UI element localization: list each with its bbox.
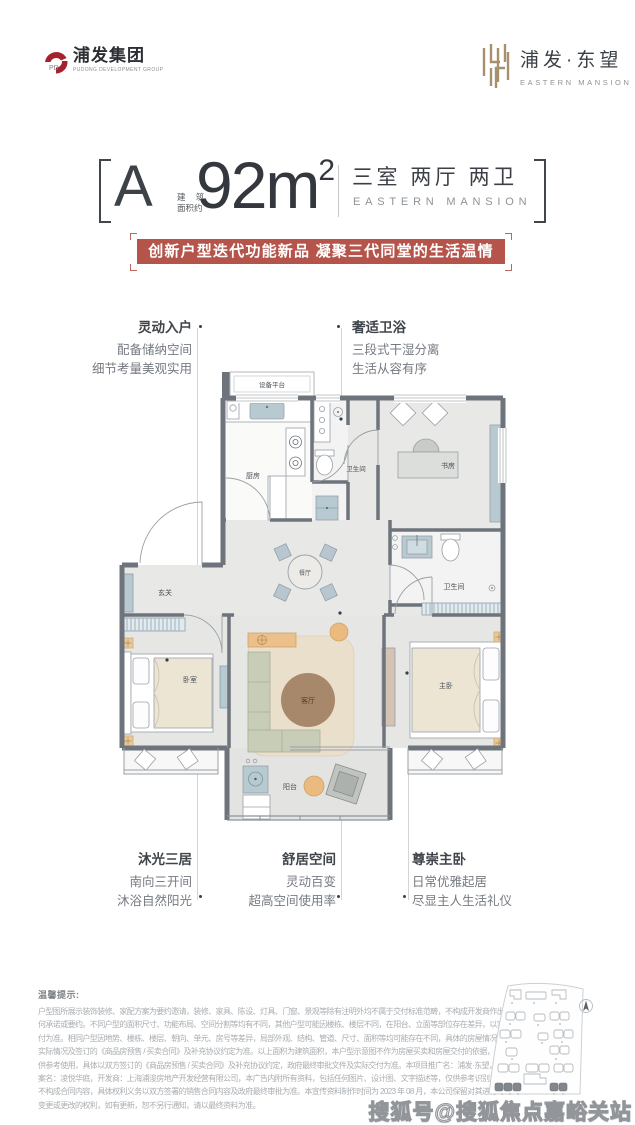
room-label-kitchen: 厨房 <box>246 471 260 480</box>
banner-corner-mark <box>130 233 137 240</box>
callout-title: 奢适卫浴 <box>352 316 512 336</box>
room-label-bedroom: 卧室 <box>183 675 197 684</box>
callout-dot <box>337 325 340 328</box>
callout-dot <box>199 325 202 328</box>
banner-corner-mark <box>130 264 137 271</box>
eastern-mansion-tagline: EASTERN MANSION <box>520 78 632 87</box>
banner-corner-mark <box>505 264 512 271</box>
pudong-group-name: 浦发集团 <box>73 46 163 65</box>
room-label-equipment: 设备平台 <box>259 380 285 389</box>
unit-area: 92m2 <box>196 147 335 223</box>
eastern-mansion-emblem-icon <box>481 42 511 90</box>
disclaimer-line: 供参考使用，具体以双方签订的《商品房预售 / 买卖合同》及补充协议约定，政府最终… <box>38 1059 486 1072</box>
living-furniture: 客厅 <box>248 623 354 756</box>
title-divider <box>338 165 339 217</box>
callout-line: 南向三开间 <box>28 873 192 892</box>
eastern-mansion-name: 浦发·东望 <box>520 50 632 72</box>
disclaimer-line: 实际情况及签订的《商品房预售 / 买卖合同》及补充协议约定为准。以上面积为建筑面… <box>38 1045 486 1058</box>
disclaimer-line: 付为准。相同户型因地势、楼栋、楼层、朝向、单元、房号等差异，局部外观、结构、管道… <box>38 1032 486 1045</box>
callout-title: 灵动入户 <box>28 316 192 336</box>
disclaimer-line: 何承诺或要约。不同户型的面积尺寸、功能布局、空间分割等均有不同，其他户型可能因楼… <box>38 1018 486 1031</box>
banner-corner-mark <box>505 233 512 240</box>
disclaimer-line: 户型图所展示装饰装修、家配方案为要约邀请，装修、家具、陈设、灯具、门窗、景观等除… <box>38 1005 486 1018</box>
callout-line: 配备储纳空间 <box>28 341 192 360</box>
site-map <box>486 980 601 1102</box>
svg-text:PD: PD <box>49 65 59 72</box>
pudong-group-tagline: PUDONG DEVELOPMENT GROUP <box>73 67 163 73</box>
room-label-bath1: 卫生间 <box>346 464 366 473</box>
callout-line: 灵动百变 <box>172 873 336 892</box>
unit-type-letter: A <box>114 153 153 220</box>
room-label-balcony: 阳台 <box>283 782 297 791</box>
pudong-group-logo: PD 浦发集团 PUDONG DEVELOPMENT GROUP <box>42 46 163 76</box>
room-label-bath2: 卫生间 <box>444 582 465 591</box>
room-label-living: 客厅 <box>301 696 315 705</box>
callout-title: 沐光三居 <box>28 848 192 868</box>
room-label-study: 书房 <box>441 461 455 470</box>
room-configuration: 三室 两厅 两卫 <box>352 161 518 191</box>
room-configuration-en: EASTERN MANSION <box>353 196 531 208</box>
disclaimer-title: 温馨提示: <box>38 988 486 1001</box>
callout-space: 舒居空间 灵动百变 超高空间使用率 <box>172 848 336 911</box>
callout-line: 尽显主人生活礼仪 <box>412 892 572 911</box>
callout-master: 尊崇主卧 日常优雅起居 尽显主人生活礼仪 <box>412 848 572 911</box>
callout-sunlight: 沐光三居 南向三开间 沐浴自然阳光 <box>28 848 192 911</box>
title-bracket-right <box>534 159 546 223</box>
callout-line: 日常优雅起居 <box>412 873 572 892</box>
callout-line: 沐浴自然阳光 <box>28 892 192 911</box>
callout-dot <box>337 895 340 898</box>
callout-line: 超高空间使用率 <box>172 892 336 911</box>
room-label-dining: 餐厅 <box>299 569 311 577</box>
area-superscript: 2 <box>318 154 335 187</box>
callout-dot <box>403 895 406 898</box>
watermark: 搜狐号@搜狐焦点嘉峪关站 <box>369 1096 632 1125</box>
callout-title: 舒居空间 <box>172 848 336 868</box>
callout-line: 三段式干湿分离 <box>352 341 512 360</box>
room-label-entry: 玄关 <box>158 588 172 597</box>
callout-title: 尊崇主卧 <box>412 848 572 868</box>
page: PD 浦发集团 PUDONG DEVELOPMENT GROUP 浦发·东望 E… <box>0 0 635 1125</box>
room-label-master: 主卧 <box>439 681 453 690</box>
eastern-mansion-logo: 浦发·东望 EASTERN MANSION <box>481 42 632 90</box>
pudong-group-logo-icon: PD <box>42 46 70 76</box>
floor-plan: 设备平台 厨房 <box>110 370 515 830</box>
disclaimer: 温馨提示: 户型图所展示装饰装修、家配方案为要约邀请，装修、家具、陈设、灯具、门… <box>38 988 486 1112</box>
slogan-banner: 创新户型迭代功能新品 凝聚三代同堂的生活温情 <box>137 239 505 264</box>
disclaimer-line: 案名：凌悦华庭，开发商：上海浦浚房地产开发经营有限公司，本广告内附所有资料，包括… <box>38 1072 486 1085</box>
title-bracket-left <box>99 159 111 223</box>
